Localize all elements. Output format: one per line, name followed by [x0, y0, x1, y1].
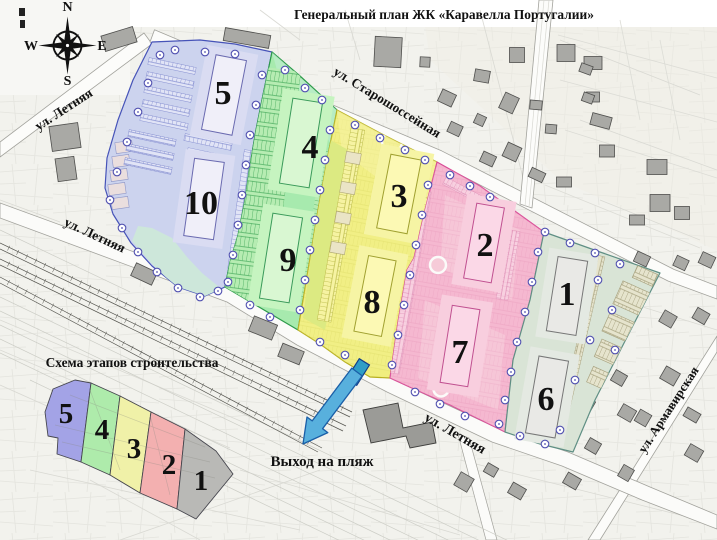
svg-text:9: 9: [280, 242, 297, 279]
svg-text:5: 5: [59, 398, 74, 430]
svg-text:Генеральный план ЖК «Каравелла: Генеральный план ЖК «Каравелла Португали…: [294, 7, 594, 22]
svg-text:1: 1: [194, 465, 209, 497]
svg-text:Выход на пляж: Выход на пляж: [271, 454, 374, 470]
svg-text:4: 4: [95, 414, 110, 446]
svg-text:3: 3: [127, 433, 142, 465]
svg-text:3: 3: [391, 178, 408, 215]
svg-text:N: N: [62, 0, 72, 15]
svg-text:5: 5: [215, 75, 232, 112]
svg-text:E: E: [97, 39, 106, 54]
svg-text:10: 10: [184, 185, 218, 222]
svg-text:4: 4: [302, 129, 319, 166]
svg-text:W: W: [24, 39, 38, 54]
svg-text:8: 8: [364, 284, 381, 321]
svg-text:7: 7: [452, 334, 469, 371]
svg-text:2: 2: [477, 227, 494, 264]
svg-text:S: S: [64, 74, 72, 89]
svg-text:2: 2: [162, 449, 177, 481]
svg-text:6: 6: [538, 381, 555, 418]
svg-text:Схема этапов строительства: Схема этапов строительства: [46, 355, 219, 370]
svg-text:1: 1: [559, 276, 576, 313]
